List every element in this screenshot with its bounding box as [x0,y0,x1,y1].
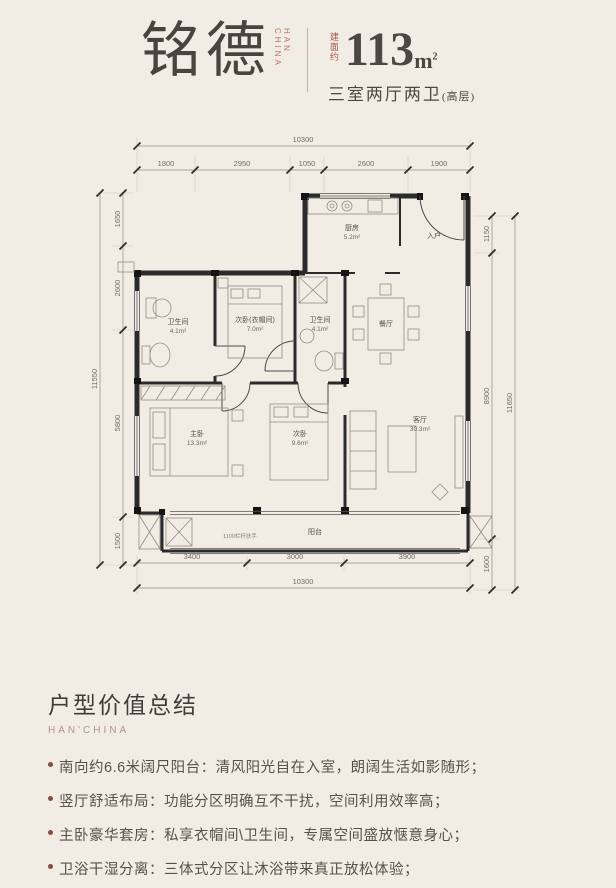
dim-top-5: 1900 [431,159,448,168]
dim-top-1: 1800 [158,159,175,168]
dim-top-total: 10300 [293,135,314,144]
label-kitchen-area: 5.2m² [344,234,361,241]
dim-top-4: 2600 [358,159,375,168]
bed2-door [298,383,328,413]
label-bed2-area: 9.6m² [292,440,309,447]
area-prefix-label: 建面约 [328,32,341,62]
floor-plan: 10300 1800 2950 1050 2600 1900 11550 165… [0,126,616,650]
dim-bottom-total: 10300 [293,577,314,586]
brand-en-line1: HAN [282,28,291,86]
summary-bullet-1: 南向约6.6米阔尺阳台：清风阳光自在入室，朗阔生活如影随形； [48,756,616,777]
summary-bullet-2: 竖厅舒适布局：功能分区明确互不干扰，空间利用效率高； [48,790,616,811]
dim-top-3: 1050 [299,159,316,168]
spec-block: 建面约 113 m2 三室两厅两卫(高层) [328,20,475,105]
dim-left-1: 1650 [113,211,122,228]
window-kitchen-top [320,192,390,200]
window-bath-left [133,291,141,331]
summary-bullet-4-text: 卫浴干湿分离：三体式分区让沐浴带来真正放松体验； [59,858,419,879]
label-bath1-area: 4.1m² [170,328,187,335]
master-door [222,383,250,411]
label-master: 主卧 [190,429,204,438]
balcony-sliding-door [170,512,460,515]
label-entry: 入户 [427,231,441,240]
label-living-area: 30.3m² [410,426,431,433]
dim-top-2: 2950 [234,159,251,168]
bullet-dot [48,864,53,869]
dim-left-3: 5800 [113,415,122,432]
header: 铭德 HAN CHINA 建面约 113 m2 三室两厅两卫(高层) [0,0,616,120]
window-master-left [133,416,141,476]
label-dining: 餐厅 [379,319,393,328]
summary-bullet-2-text: 竖厅舒适布局：功能分区明确互不干扰，空间利用效率高； [59,790,449,811]
label-balcony: 阳台 [308,527,322,536]
kitchen-counter [308,198,398,214]
label-bed2: 次卧 [293,429,307,438]
bath1-fixtures [142,298,171,367]
bath2-door [265,341,295,371]
summary-bullet-1-text: 南向约6.6米阔尺阳台：清风阳光自在入室，朗阔生活如影随形； [59,756,486,777]
layout-subtitle-text: 三室两厅两卫 [328,85,442,104]
dim-right-2: 8900 [482,388,491,405]
summary-bullet-3: 主卧豪华套房：私享衣帽间\卫生间，专属空间盛放惬意身心； [48,824,616,845]
living-sofa [350,411,463,500]
summary-bullet-3-text: 主卧豪华套房：私享衣帽间\卫生间，专属空间盛放惬意身心； [59,824,469,845]
area-unit-m: m [414,48,432,73]
window-dining-right [464,286,472,331]
label-bath2-area: 4.1m² [312,326,329,333]
page: 铭德 HAN CHINA 建面约 113 m2 三室两厅两卫(高层) [0,0,616,888]
brand-en-line2: CHINA [273,28,282,86]
walls [137,196,468,551]
label-cloak: 次卧(衣帽间) [235,315,275,324]
ac-platform-right [470,516,492,548]
dim-left-2: 2600 [113,280,122,297]
window-living-right [464,421,472,481]
bullet-dot [48,796,53,801]
bullet-dot [48,762,53,767]
summary-title: 户型价值总结 [48,686,616,720]
bath1-door [215,346,245,376]
label-bath1: 卫生间 [168,317,189,326]
area-unit: m2 [414,48,437,74]
structural-columns [134,193,469,515]
area-unit-sup: 2 [433,52,438,63]
dim-left-total: 11550 [90,369,99,389]
summary-bullets: 南向约6.6米阔尺阳台：清风阳光自在入室，朗阔生活如影随形； 竖厅舒适布局：功能… [48,756,616,879]
bath2-fixtures [299,277,343,371]
bullet-dot [48,830,53,835]
dim-left-4: 1500 [113,533,122,550]
summary-section: 户型价值总结 HAN'CHINA 南向约6.6米阔尺阳台：清风阳光自在入室，朗阔… [48,686,616,879]
dim-right-total: 11650 [505,393,514,413]
shaft-bottom-left [139,515,160,549]
area-row: 建面约 113 m2 [328,26,475,74]
layout-subtitle-note: (高层) [442,91,475,103]
doors [215,196,464,413]
master-wardrobe [141,386,225,400]
dimension-labels: 10300 1800 2950 1050 2600 1900 11550 165… [90,135,514,586]
dim-right-1: 1150 [482,226,491,242]
floor-plan-section: 10300 1800 2950 1050 2600 1900 11550 165… [0,126,616,650]
label-master-area: 13.3m² [187,440,208,447]
ac-platform-left [118,262,134,272]
label-cloak-area: 7.0m² [247,326,264,333]
header-divider [307,28,308,92]
brand-block: 铭德 HAN CHINA [141,20,291,86]
brand-name: 铭德 [141,20,271,83]
summary-subtitle: HAN'CHINA [48,725,616,736]
label-bath2: 卫生间 [310,315,331,324]
brand-name-en: HAN CHINA [273,28,291,86]
layout-subtitle: 三室两厅两卫(高层) [328,80,475,105]
area-value: 113 [345,26,414,74]
balcony-equipment [166,518,192,546]
summary-bullet-4: 卫浴干湿分离：三体式分区让沐浴带来真正放松体验； [48,858,616,879]
label-living: 客厅 [413,415,427,424]
label-kitchen: 厨房 [345,223,359,232]
label-balcony-note: 1100栏杆扶手 [223,532,257,540]
dim-right-3: 1600 [482,556,491,573]
